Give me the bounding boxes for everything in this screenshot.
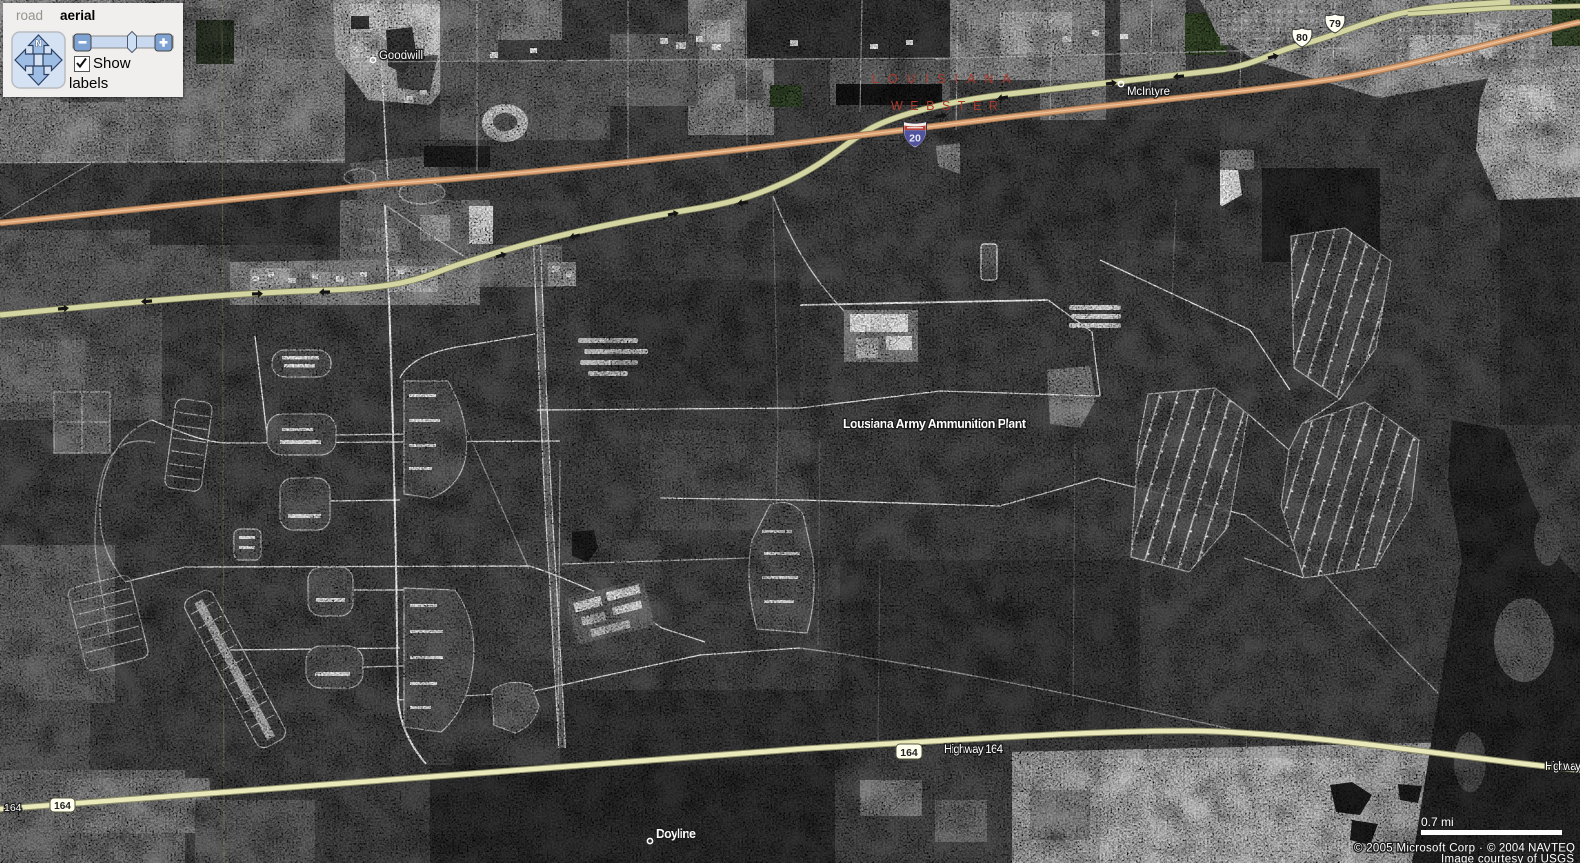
svg-text:164: 164 xyxy=(4,802,22,814)
svg-text:McIntyre: McIntyre xyxy=(1127,86,1170,98)
svg-text:LOUISIANA: LOUISIANA xyxy=(872,72,1020,86)
svg-text:Goodwill: Goodwill xyxy=(379,50,423,62)
svg-text:Doyline: Doyline xyxy=(656,827,696,841)
svg-text:20: 20 xyxy=(909,133,921,145)
svg-text:Highway 164: Highway 164 xyxy=(944,744,1004,756)
svg-text:0.7 mi: 0.7 mi xyxy=(1421,815,1454,829)
svg-text:80: 80 xyxy=(1296,32,1308,44)
svg-text:164: 164 xyxy=(900,747,918,759)
svg-text:Lousiana Army Ammunition Plant: Lousiana Army Ammunition Plant xyxy=(843,417,1027,431)
svg-text:WEBSTER: WEBSTER xyxy=(891,99,1005,113)
svg-text:Highway: Highway xyxy=(1545,761,1580,773)
svg-text:164: 164 xyxy=(54,801,71,812)
svg-text:N: N xyxy=(35,39,42,49)
svg-text:79: 79 xyxy=(1329,18,1341,30)
svg-text:Image courtesy of USGS: Image courtesy of USGS xyxy=(1441,854,1574,863)
